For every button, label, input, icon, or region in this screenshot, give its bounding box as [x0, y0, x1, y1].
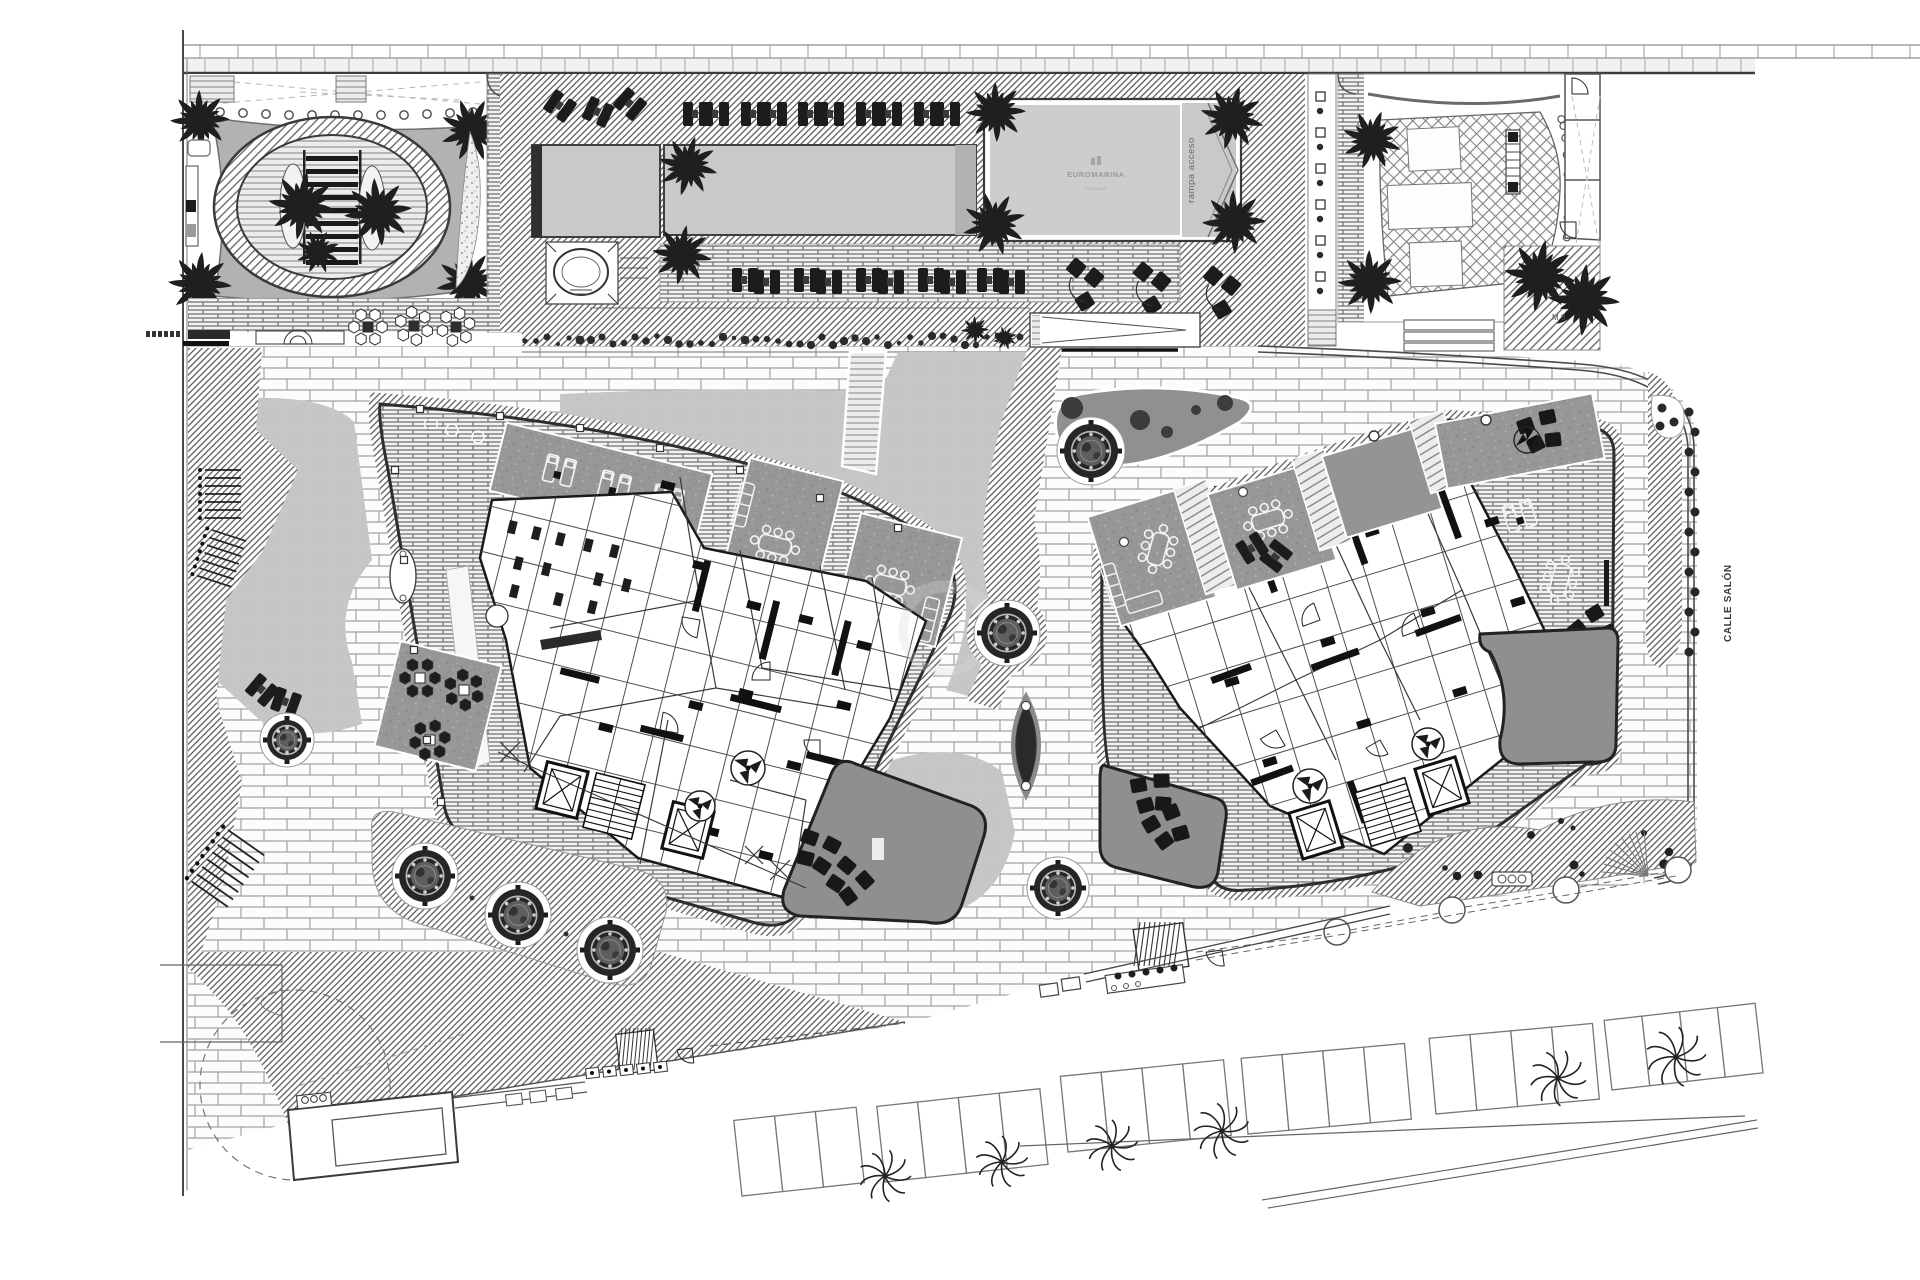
svg-text:PISCINAS: PISCINAS — [1085, 186, 1107, 191]
svg-text:M 8: M 8 — [1552, 313, 1566, 322]
svg-text:rampa acceso: rampa acceso — [1186, 137, 1197, 203]
svg-text:CALLE SALÓN: CALLE SALÓN — [1721, 564, 1734, 642]
svg-text:EUROMARINA: EUROMARINA — [1067, 170, 1125, 179]
